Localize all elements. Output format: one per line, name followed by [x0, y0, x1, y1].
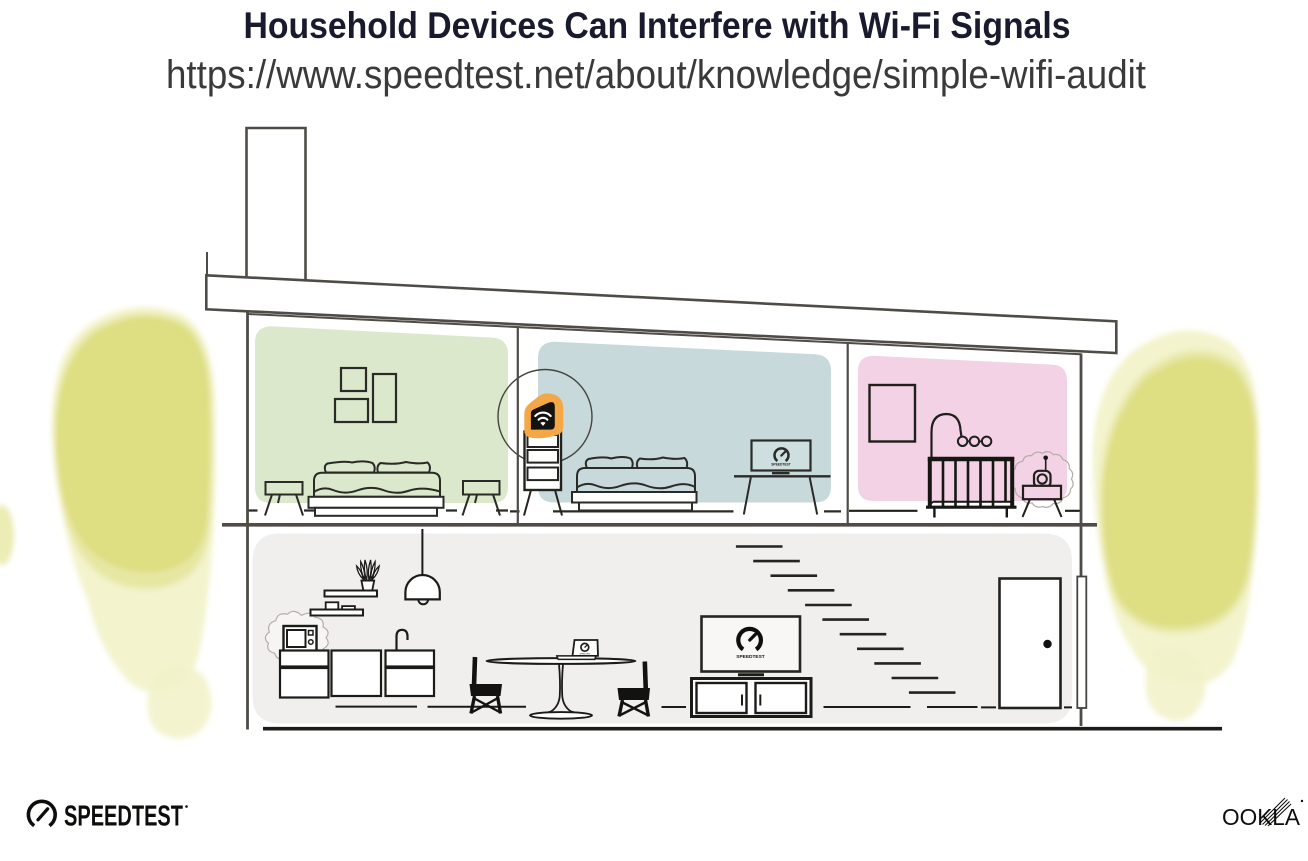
svg-text:SPEEDTEST: SPEEDTEST [771, 463, 791, 467]
svg-text:SPEEDTEST: SPEEDTEST [736, 654, 765, 659]
svg-text:OOKLA: OOKLA [1222, 804, 1300, 830]
svg-text:https://www.speedtest.net/abou: https://www.speedtest.net/about/knowledg… [166, 53, 1146, 97]
svg-text:SPEEDTEST: SPEEDTEST [64, 801, 183, 833]
svg-text:Household Devices Can Interfer: Household Devices Can Interfere with Wi-… [244, 5, 1071, 46]
